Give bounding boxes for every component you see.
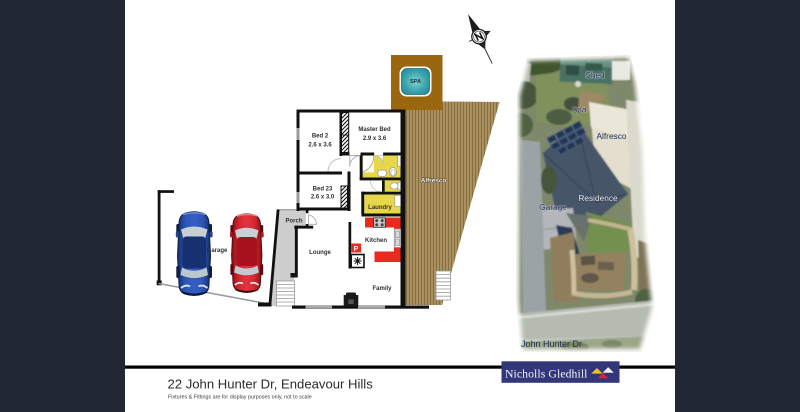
svg-text:Kitchen: Kitchen xyxy=(365,238,387,244)
svg-text:Alfresco: Alfresco xyxy=(421,178,447,185)
svg-text:Garage: Garage xyxy=(539,202,567,212)
svg-text:John Hunter Dr: John Hunter Dr xyxy=(521,339,582,349)
svg-text:Lounge: Lounge xyxy=(309,250,331,256)
svg-text:Nicholls Gledhill: Nicholls Gledhill xyxy=(505,368,588,381)
svg-text:Porch: Porch xyxy=(285,218,302,224)
svg-text:P: P xyxy=(354,246,359,253)
svg-text:22 John Hunter Dr, Endeavour H: 22 John Hunter Dr, Endeavour Hills xyxy=(168,377,374,392)
svg-text:Laundry: Laundry xyxy=(368,205,392,211)
svg-text:Master Bed: Master Bed xyxy=(358,127,391,133)
svg-text:2.6 x 3.0: 2.6 x 3.0 xyxy=(311,195,335,201)
svg-text:SPA: SPA xyxy=(410,79,421,85)
svg-text:Bed 2: Bed 2 xyxy=(312,134,329,140)
svg-text:Residence: Residence xyxy=(578,193,618,203)
svg-text:Spa: Spa xyxy=(572,105,587,115)
svg-text:Bed 23: Bed 23 xyxy=(313,186,333,192)
svg-text:2.9 x 3.6: 2.9 x 3.6 xyxy=(363,136,387,142)
svg-text:Alfresco: Alfresco xyxy=(597,131,627,141)
svg-text:Garage: Garage xyxy=(207,248,228,254)
svg-text:Fixtures & Fittings are for di: Fixtures & Fittings are for display purp… xyxy=(168,395,312,401)
svg-text:2.6 x 3.6: 2.6 x 3.6 xyxy=(308,143,332,149)
svg-text:Family: Family xyxy=(372,286,392,292)
svg-text:Shed: Shed xyxy=(585,70,605,80)
